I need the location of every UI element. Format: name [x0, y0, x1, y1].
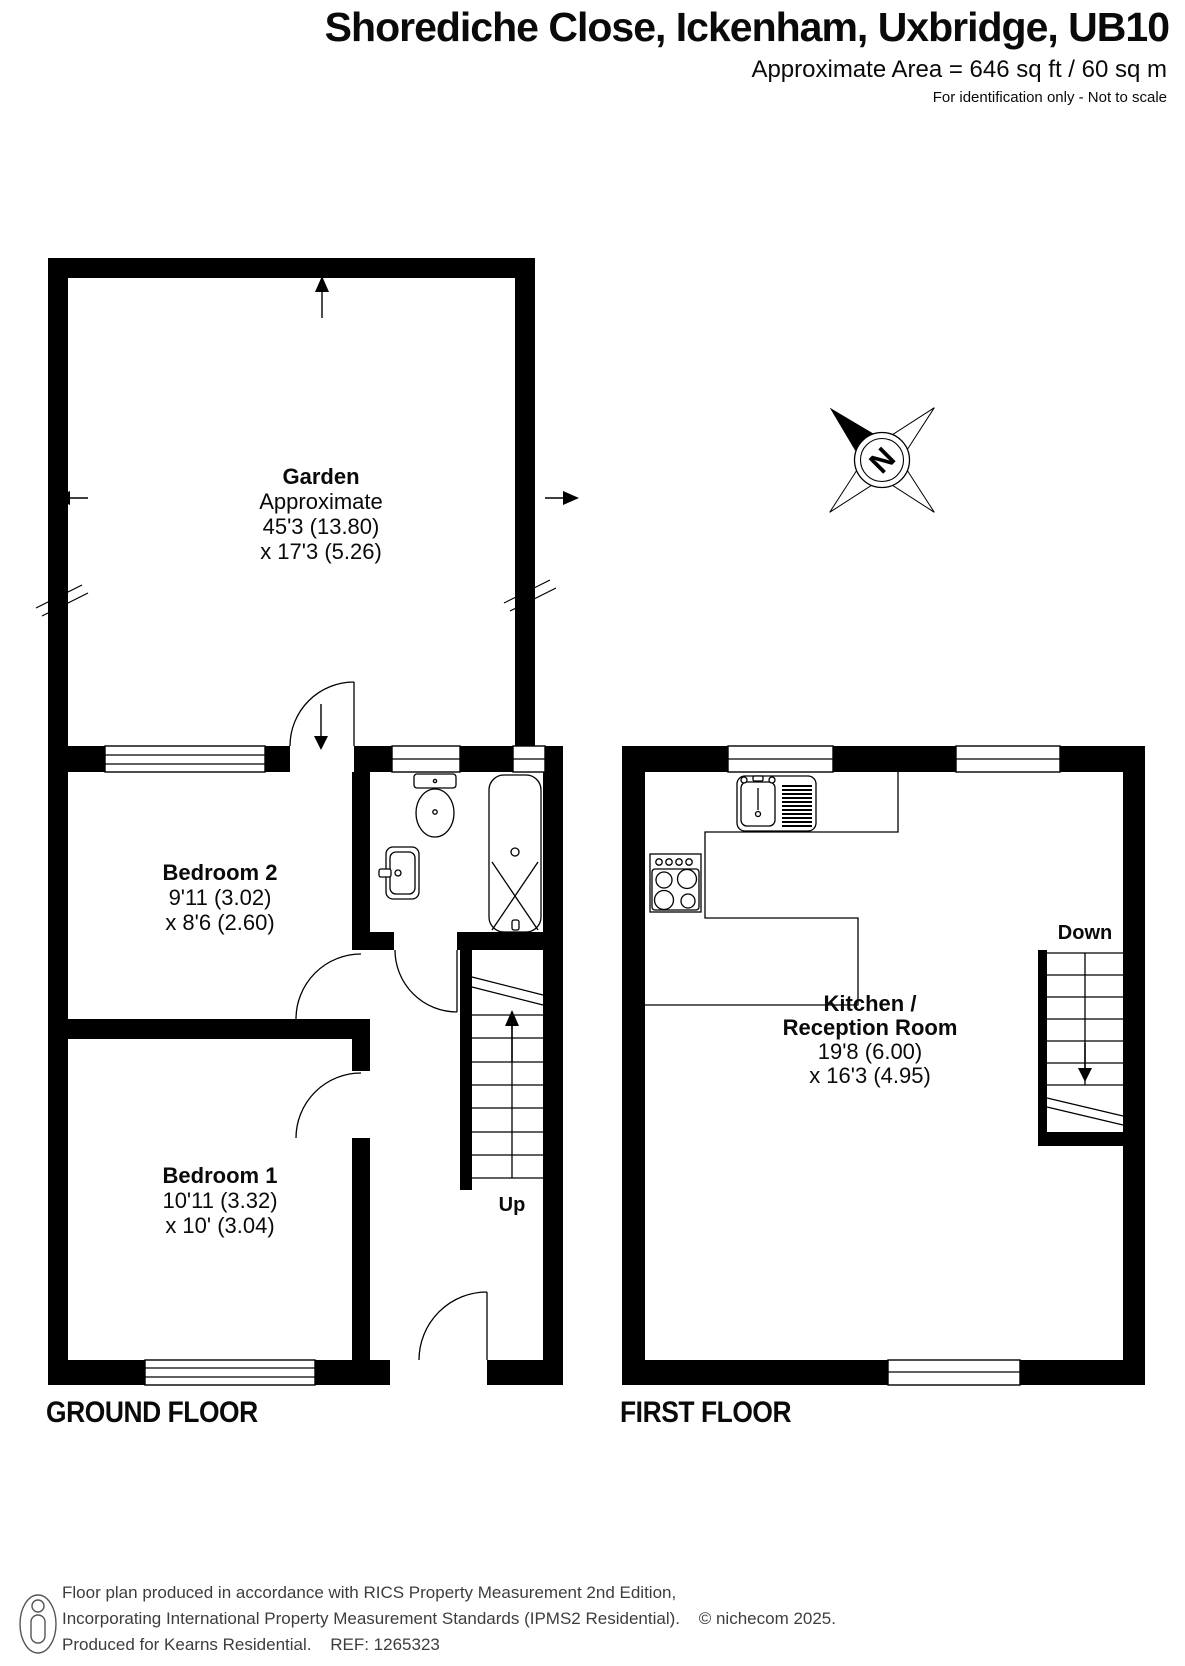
room-dim2: x 17'3 (5.26): [211, 539, 431, 564]
room-dim1: 9'11 (3.02): [110, 885, 330, 910]
room-dim2: x 16'3 (4.95): [740, 1064, 1000, 1088]
toilet-icon: [414, 774, 456, 837]
room-name-line2: Reception Room: [740, 1016, 1000, 1040]
room-name: Bedroom 1: [110, 1163, 330, 1188]
ground-floor-label: GROUND FLOOR: [46, 1396, 287, 1430]
room-dim1: 45'3 (13.80): [211, 514, 431, 539]
footer-line3: Produced for Kearns Residential. REF: 12…: [62, 1632, 836, 1658]
bedroom2-label: Bedroom 2 9'11 (3.02) x 8'6 (2.60): [110, 860, 330, 935]
entry-arrow-icon: [314, 704, 328, 750]
garden-label: Garden Approximate 45'3 (13.80) x 17'3 (…: [211, 464, 431, 564]
floorplan-page: Shorediche Close, Ickenham, Uxbridge, UB…: [0, 0, 1185, 1666]
stairs-down-label: Down: [1050, 922, 1120, 945]
hob-icon: [650, 854, 701, 912]
room-dim2: x 10' (3.04): [110, 1213, 330, 1238]
room-dim1: 10'11 (3.32): [110, 1188, 330, 1213]
footer-line2: Incorporating International Property Mea…: [62, 1606, 836, 1632]
footer: Floor plan produced in accordance with R…: [62, 1580, 836, 1658]
room-note: Approximate: [211, 489, 431, 514]
copyright-text: © nichecom 2025.: [699, 1609, 836, 1628]
ground-stairs: [472, 977, 543, 1178]
garden-break-marks: [36, 580, 556, 616]
first-floor-label: FIRST FLOOR: [620, 1396, 814, 1430]
bathroom-sink-icon: [379, 847, 419, 899]
kitchen-label: Kitchen / Reception Room 19'8 (6.00) x 1…: [740, 992, 1000, 1088]
bedroom1-label: Bedroom 1 10'11 (3.32) x 10' (3.04): [110, 1163, 330, 1238]
reference-number: REF: 1265323: [330, 1635, 440, 1654]
room-dim1: 19'8 (6.00): [740, 1040, 1000, 1064]
bath-icon: [489, 775, 541, 932]
ground-floor-window-mullions: [105, 755, 545, 1377]
ground-floor-windows: [105, 746, 545, 1385]
up-arrow-icon: [505, 1010, 519, 1062]
room-name: Garden: [211, 464, 431, 489]
room-name: Bedroom 2: [110, 860, 330, 885]
footer-line1: Floor plan produced in accordance with R…: [62, 1580, 836, 1606]
first-stairs: [1047, 953, 1123, 1125]
stairs-up-label: Up: [482, 1194, 542, 1217]
person-icon: [20, 1595, 56, 1653]
room-name-line1: Kitchen /: [740, 992, 1000, 1016]
compass-north-icon: N: [777, 355, 986, 564]
room-dim2: x 8'6 (2.60): [110, 910, 330, 935]
